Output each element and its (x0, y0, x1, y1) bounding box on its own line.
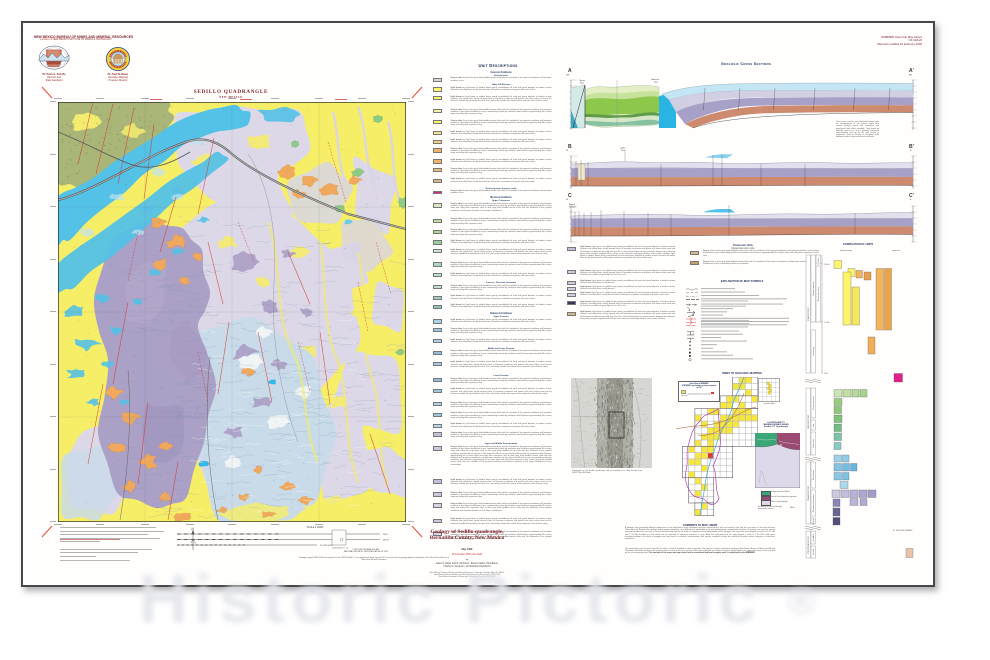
svg-text:Pennsylvanian: Pennsylvanian (813, 493, 815, 512)
svg-text:Permian: Permian (812, 469, 815, 480)
svg-text:Pleistocene: Pleistocene (817, 286, 820, 301)
svg-text:1.6 Ma: 1.6 Ma (824, 322, 830, 324)
svg-text:CENOZOIC: CENOZOIC (808, 307, 810, 321)
svg-text:PROTEROZOIC: PROTEROZOIC (808, 535, 810, 553)
svg-text:MILES: MILES (383, 540, 390, 542)
svg-text:early: early (812, 548, 815, 555)
svg-text:PALEOZOIC: PALEOZOIC (807, 485, 810, 500)
svg-text:5 Ma: 5 Ma (824, 373, 828, 375)
svg-text:MESOZOIC: MESOZOIC (808, 414, 810, 428)
svg-text:M: M (893, 530, 895, 532)
svg-text:middle: middle (813, 533, 815, 542)
svg-text:ETACONGLOMERATE: ETACONGLOMERATE (896, 529, 912, 532)
svg-text:QUADRANGLE LOCATION: QUADRANGLE LOCATION (332, 547, 348, 550)
svg-text:10,000: 10,000 (824, 264, 830, 266)
svg-text:Quaternary: Quaternary (812, 281, 815, 296)
svg-text:Tertiary: Tertiary (812, 346, 815, 356)
svg-text:Cretaceous: Cretaceous (812, 395, 815, 410)
svg-text:Holo.: Holo. (818, 256, 820, 263)
svg-text:Triassic: Triassic (812, 438, 815, 448)
svg-text:Jur.: Jur. (812, 423, 815, 428)
svg-text:FEET: FEET (383, 534, 389, 536)
svg-text:Miss.: Miss. (813, 518, 815, 525)
